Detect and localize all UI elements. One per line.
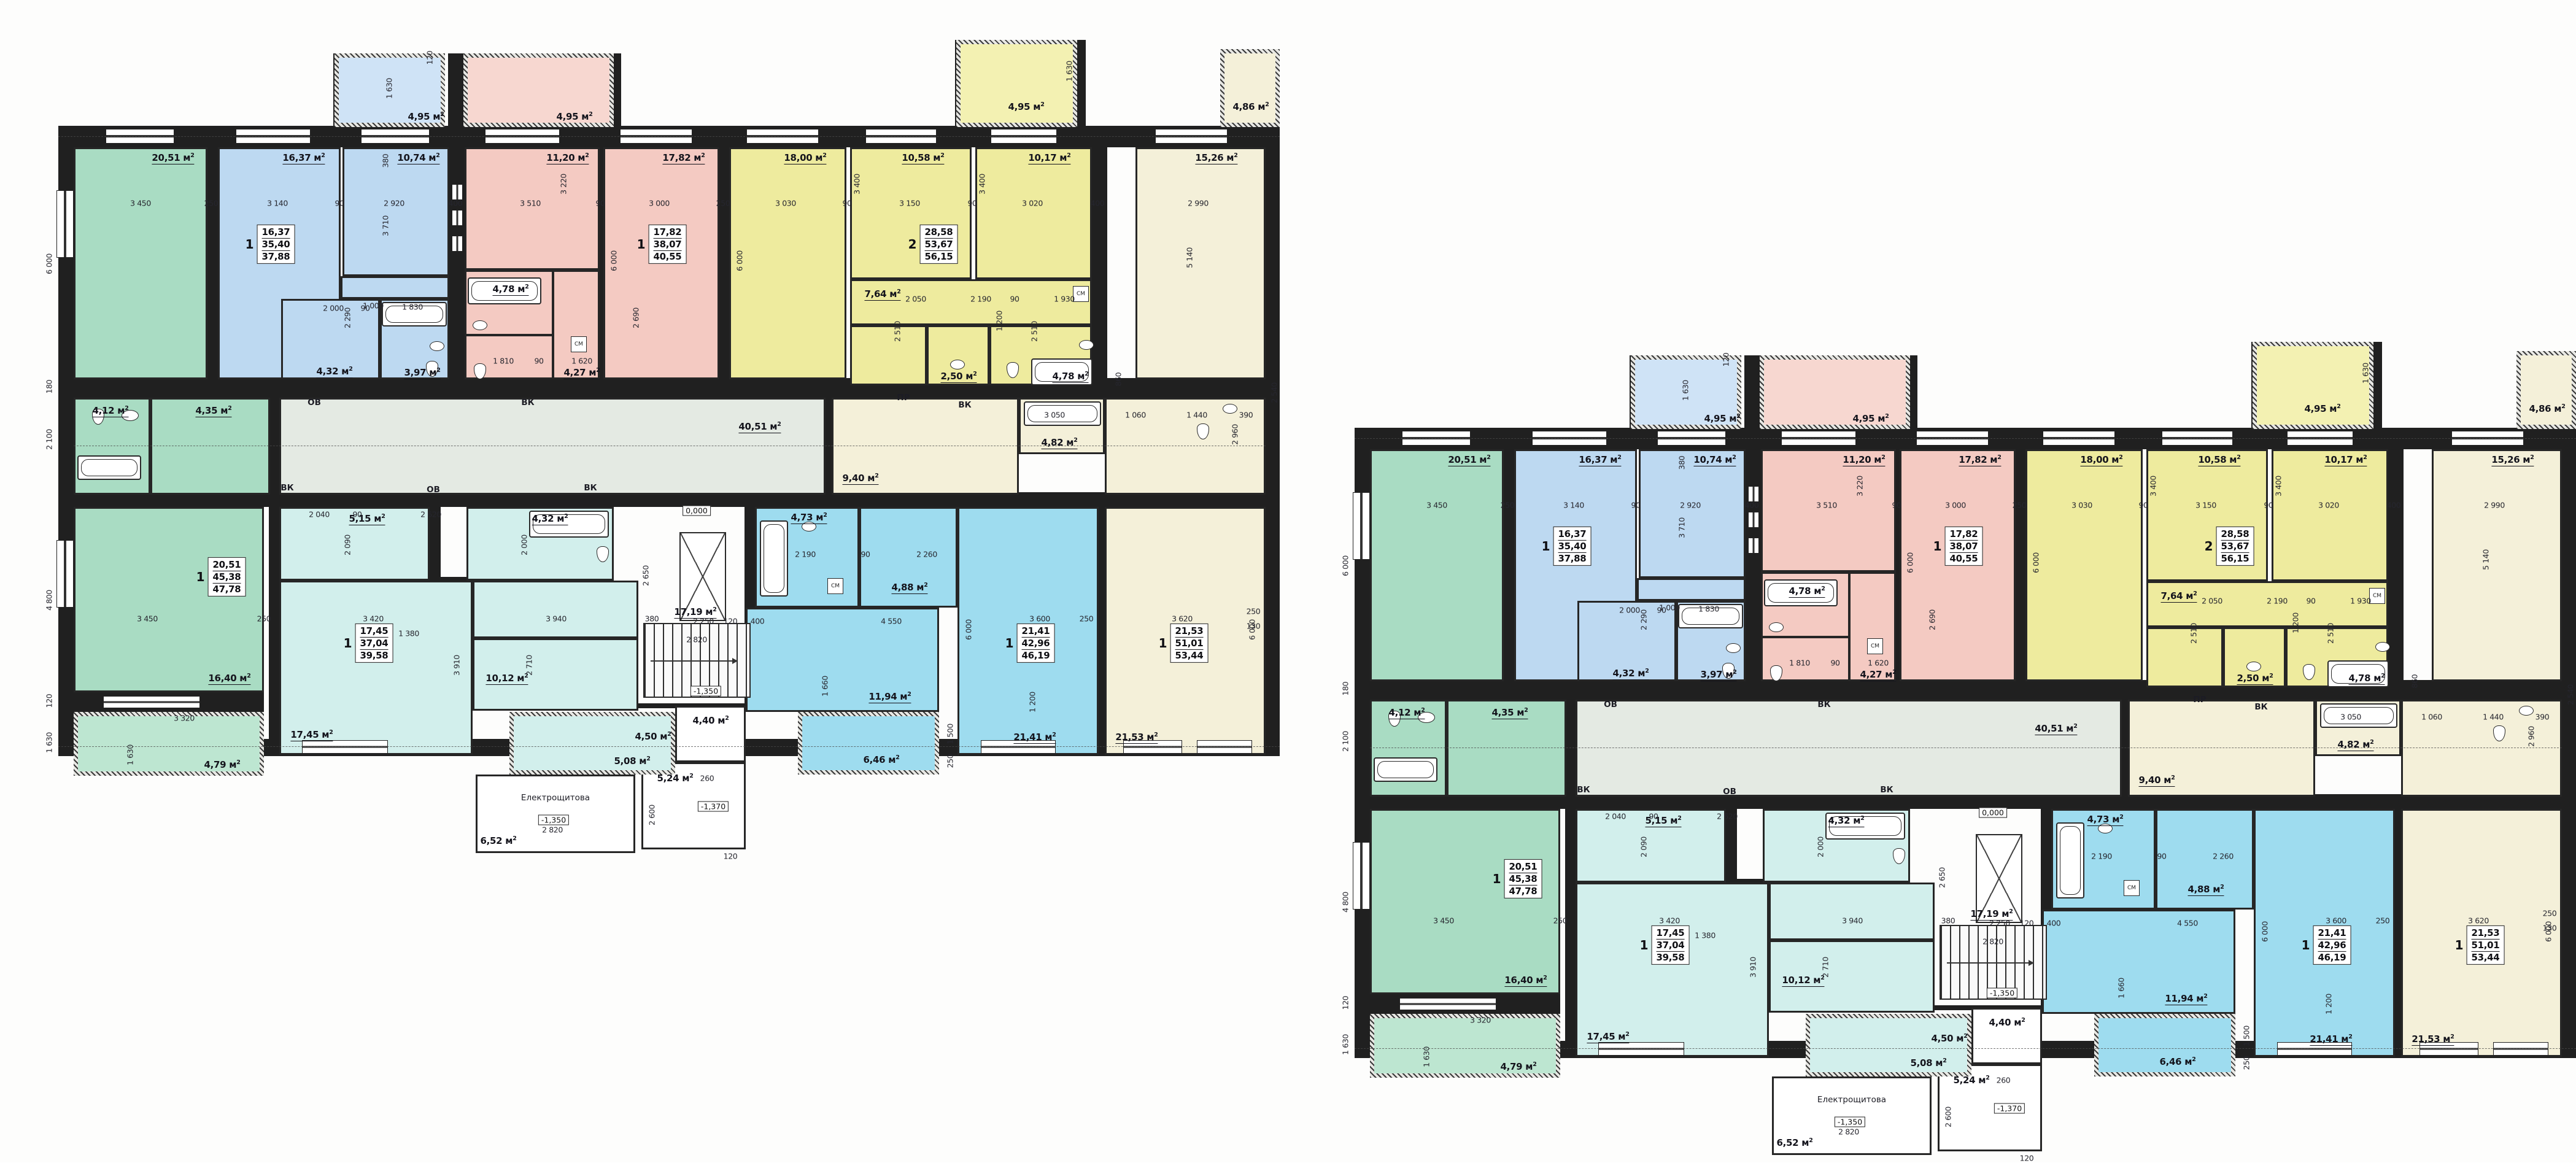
- dimension-label: 2 190: [795, 550, 816, 559]
- apartment-area-value: 16,37: [261, 226, 290, 239]
- room-area-label: 2,50 м2: [940, 371, 977, 383]
- dimension-label: 250: [1080, 614, 1094, 624]
- dimension-label-vertical: 1 660: [2117, 978, 2126, 999]
- vestibule-440: [675, 706, 746, 762]
- dimension-label: 1 440: [1186, 411, 1207, 420]
- dimension-label-vertical: 3 220: [1855, 476, 1865, 496]
- room-area-label: 17,82 м2: [1959, 454, 2001, 466]
- dimension-label: 3 320: [174, 714, 195, 723]
- dimension-label-vertical: 4 800: [1341, 892, 1350, 913]
- room-area-label: 17,82 м2: [662, 152, 705, 164]
- apartment-area-value: 17,82: [653, 226, 681, 239]
- dimension-label-vertical: 2 960: [2527, 726, 2536, 747]
- dimension-label: 2 920: [384, 199, 404, 208]
- room-area-label: 10,58 м2: [2198, 454, 2240, 466]
- dimension-label: 1 830: [1698, 605, 1719, 614]
- dimension-label: 250: [204, 199, 219, 208]
- room-area-label: 7,64 м2: [864, 288, 900, 301]
- room-area-label: 7,64 м2: [2160, 590, 2197, 603]
- room-area-label: 17,45 м2: [1587, 1031, 1629, 1043]
- apartment-room-count: 1: [246, 237, 254, 252]
- apartment-room-count: 1: [1493, 871, 1501, 886]
- dimension-label-vertical: 180: [1341, 682, 1350, 696]
- room-area-label: 4,73 м2: [2087, 814, 2123, 826]
- dimension-label-vertical: 1 200: [995, 311, 1004, 331]
- level-mark: -1,350: [1987, 988, 2017, 999]
- room-area-label: 3,97 м2: [404, 367, 440, 379]
- dimension-label-vertical: 2 100: [45, 429, 54, 450]
- axis-line: [1355, 1048, 2576, 1049]
- apartment-area-value: 53,67: [924, 239, 953, 251]
- dimension-label: 2 990: [1188, 199, 1209, 208]
- dimension-label: 90: [360, 304, 369, 313]
- apartment-area-value: 53,44: [2471, 951, 2499, 963]
- sink-fixture: [950, 360, 965, 369]
- dimension-label: 390: [2535, 713, 2550, 722]
- dimension-label: 2 040: [1605, 812, 1626, 821]
- dimension-label-vertical: 2 690: [1928, 609, 1937, 630]
- tub-fixture: [760, 520, 788, 597]
- dimension-label-vertical: 1 630: [126, 744, 135, 765]
- wall-segment: [269, 398, 279, 755]
- dimension-label: 90: [2264, 501, 2273, 510]
- dimension-label: 2 250: [1989, 919, 2010, 928]
- tub-fixture: [1374, 757, 1437, 782]
- apartment-areas-box: 16,3735,4037,88: [1553, 527, 1591, 566]
- dimension-label: 90: [1657, 606, 1666, 615]
- apartment-area-value: 45,38: [1509, 873, 1537, 886]
- wall-segment: [1909, 355, 1917, 430]
- dimension-label-vertical: 3 400: [853, 174, 862, 195]
- apartment-area-value: 53,44: [1175, 649, 1203, 661]
- apartment-area-value: 47,78: [212, 583, 241, 595]
- room-area-label: 4,35 м2: [1491, 707, 1528, 719]
- dimension-label: 250: [1501, 501, 1515, 510]
- dimension-label: 3 450: [1433, 916, 1454, 925]
- wash-fixture: СМ: [571, 336, 587, 352]
- dimension-label-vertical: 2 090: [1639, 837, 1649, 857]
- service-niche-label: ПР: [897, 393, 910, 403]
- room-area-label: 4,27 м2: [563, 367, 600, 379]
- window: [1748, 538, 1759, 554]
- dimension-label: 2 040: [309, 510, 330, 519]
- wall-segment: [1264, 126, 1280, 756]
- dimension-label: 250: [257, 614, 271, 624]
- apartment-areas-box: 16,3735,4037,88: [257, 225, 295, 264]
- balcony-area-label: 4,86 м2: [2529, 403, 2565, 414]
- apt-info-blue: 116,3735,4037,88: [246, 225, 295, 264]
- dimension-label: 250: [716, 199, 730, 208]
- room-area-label: 4,32 м2: [1612, 668, 1649, 680]
- window: [103, 696, 200, 708]
- dimension-label-vertical: 250: [946, 754, 955, 768]
- room-area-label: 11,20 м2: [1843, 454, 1885, 466]
- dimension-label: 3 050: [2340, 713, 2361, 722]
- dimension-label: 1 830: [402, 303, 423, 312]
- service-niche-label: ВК: [1817, 700, 1830, 709]
- room-area-label: 11,94 м2: [2165, 993, 2207, 1005]
- apartment-area-value: 47,78: [1509, 885, 1537, 897]
- dimension-label-vertical: 1 630: [385, 78, 394, 99]
- room-area-label: 4,12 м2: [92, 405, 128, 417]
- apartment-areas-box: 28,5853,6756,15: [2216, 527, 2254, 566]
- room-area-label: 11,20 м2: [546, 152, 589, 164]
- dimension-label: 3 600: [2326, 916, 2346, 925]
- window: [1748, 512, 1759, 528]
- balcony-area-label: 4,95 м2: [1008, 101, 1044, 112]
- room-area-label: 21,53 м2: [1115, 732, 1158, 744]
- service-niche-label: ВК: [2254, 702, 2267, 712]
- balcony-yellow: [2253, 342, 2373, 429]
- dimension-label: 2 820: [686, 635, 707, 644]
- service-niche-label: ВК: [958, 400, 971, 410]
- wall-segment: [613, 53, 621, 128]
- dimension-label: 1 620: [1868, 659, 1889, 668]
- dimension-label: 2 260: [916, 550, 937, 559]
- room-area-label: 9,40 м2: [842, 473, 878, 485]
- service-niche-label: ВК: [1880, 785, 1893, 795]
- level-mark: 0,000: [683, 506, 711, 516]
- dimension-label-vertical: 2 290: [343, 307, 352, 328]
- tub-fixture: [77, 455, 141, 480]
- apartment-areas-box: 21,5351,0153,44: [1170, 624, 1208, 663]
- balcony-area-label: 4,79 м2: [204, 759, 240, 770]
- dimension-label-vertical: 2 510: [2189, 623, 2199, 644]
- dimension-label-vertical: 380: [1677, 456, 1687, 470]
- window: [1197, 740, 1252, 754]
- dimension-label: 3 140: [1563, 501, 1584, 510]
- room-area-label: 4,82 м2: [1041, 437, 1077, 449]
- tub-fixture: [2056, 822, 2084, 898]
- dimension-label: 3 140: [267, 199, 288, 208]
- apartment-room-count: 2: [908, 237, 917, 252]
- room-name-label: Електрощитова: [521, 793, 590, 803]
- dimension-label-vertical: 120: [45, 694, 54, 708]
- apartment-area-value: 21,53: [1175, 625, 1203, 638]
- hall-blue: [1637, 578, 1746, 601]
- balcony-area-label: 4,95 м2: [1704, 413, 1740, 424]
- apartment-room-count: 2: [2205, 539, 2213, 554]
- dimension-label: 400: [1091, 199, 1105, 208]
- dimension-label-vertical: 120: [1341, 996, 1350, 1010]
- dimension-label: 3 030: [2071, 501, 2092, 510]
- dimension-label: 2 620: [420, 510, 441, 519]
- apartment-room-count: 1: [1005, 636, 1014, 651]
- wash-fixture: СМ: [2369, 588, 2385, 604]
- dimension-label: 400: [751, 617, 765, 626]
- dimension-label: 4 550: [881, 617, 902, 626]
- dimension-label-vertical: 2 090: [343, 535, 352, 555]
- apartment-areas-box: 20,5145,3847,78: [207, 557, 246, 597]
- service-niche-label: ОВ: [427, 485, 440, 495]
- dimension-label-vertical: 860: [2410, 674, 2419, 689]
- room-area-label: 20,51 м2: [152, 152, 194, 164]
- room-area-label: 15,26 м2: [2491, 454, 2534, 466]
- room-area-label: 4,78 м2: [1052, 371, 1088, 383]
- dimension-label-vertical: 1 630: [1341, 1034, 1350, 1055]
- level-mark: -1,350: [690, 686, 721, 697]
- dimension-label: 90: [1892, 501, 1901, 510]
- apartment-area-value: 40,55: [1949, 552, 1978, 564]
- dimension-label-vertical: 2 650: [641, 565, 651, 586]
- dimension-label: 90: [352, 510, 362, 519]
- dimension-label: 120: [724, 617, 738, 626]
- dimension-label-vertical: 1 660: [821, 676, 830, 697]
- apartment-area-value: 37,04: [1656, 940, 1684, 952]
- dimension-label-vertical: 1 630: [1681, 380, 1690, 401]
- window: [452, 236, 463, 252]
- room-area-label: 10,17 м2: [2324, 454, 2367, 466]
- wash-fixture: СМ: [2124, 880, 2140, 896]
- axis-line: [1355, 438, 2576, 439]
- apartment-area-value: 39,58: [1656, 951, 1684, 963]
- room-area-label: 21,53 м2: [2412, 1034, 2454, 1046]
- dimension-label-vertical: 3 710: [381, 215, 390, 236]
- apartment-room-count: 1: [1933, 539, 1942, 554]
- dimension-label: 90: [2157, 852, 2166, 861]
- wall-segment: [206, 147, 218, 379]
- apt-info-cyan2: 121,4142,9646,19: [1005, 624, 1055, 663]
- apartment-area-value: 53,67: [2221, 541, 2249, 553]
- dimension-label: 380: [1941, 916, 1955, 925]
- wall-segment: [1565, 700, 1576, 1057]
- dimension-label: 1 930: [2350, 597, 2371, 606]
- room-area-label: 2,50 м2: [2237, 673, 2273, 685]
- apartment-areas-box: 28,5853,6756,15: [919, 225, 957, 264]
- dimension-label: 2 050: [2202, 597, 2222, 606]
- apartment-area-value: 46,19: [1021, 649, 1050, 661]
- dimension-label-vertical: 6 000: [609, 250, 619, 271]
- room-area-label: 11,94 м2: [868, 691, 911, 703]
- dimension-label: 2 190: [2267, 597, 2288, 606]
- balcony-area-label: 6,46 м2: [863, 754, 899, 765]
- dimension-label-vertical: 4 800: [45, 590, 54, 611]
- dimension-label-vertical: 120: [1722, 353, 1731, 367]
- dimension-label: 1 930: [1054, 295, 1075, 304]
- dimension-label-vertical: 1 500: [2242, 1026, 2251, 1046]
- dimension-label: 3 510: [1816, 501, 1837, 510]
- dimension-label-vertical: 6 000: [735, 250, 745, 271]
- dimension-label-vertical: 3 710: [1677, 517, 1687, 538]
- apartment-room-count: 1: [1159, 636, 1167, 651]
- balcony-area-label: 4,95 м2: [408, 111, 444, 122]
- dimension-label: 4 550: [2177, 919, 2198, 928]
- room-kitchen-blue: [1639, 449, 1746, 578]
- apartment-area-value: 56,15: [924, 250, 953, 262]
- apartment-areas-box: 21,5351,0153,44: [2466, 925, 2504, 965]
- room-area-label: 21,41 м2: [2310, 1034, 2352, 1046]
- dimension-label: 90: [1631, 501, 1640, 510]
- apt-info-pink: 117,8238,0740,55: [637, 225, 687, 264]
- apt-info-blue: 116,3735,4037,88: [1542, 527, 1592, 566]
- apartment-area-value: 51,01: [1175, 638, 1203, 650]
- dimension-label-vertical: 6 000: [1341, 555, 1350, 576]
- dimension-label: 1 380: [1695, 931, 1715, 940]
- room-area-label: 21,41 м2: [1013, 732, 1056, 744]
- dimension-label-vertical: 2 710: [525, 655, 534, 676]
- window: [1399, 998, 1496, 1010]
- apt-info-cyan1: 117,4537,0439,58: [344, 624, 393, 663]
- dimension-label-vertical: 3 910: [452, 655, 462, 676]
- service-niche-label: ПР: [2193, 695, 2206, 705]
- dimension-label: 1 440: [2483, 713, 2504, 722]
- dimension-label-vertical: 1 200: [1028, 692, 1037, 713]
- window: [56, 540, 74, 608]
- apartment-area-value: 40,55: [653, 250, 681, 262]
- balcony-area-label: 4,95 м2: [2304, 403, 2340, 414]
- niche-yellow: [2146, 627, 2223, 687]
- wash-fixture: СМ: [827, 578, 843, 594]
- dimension-label-vertical: 2 290: [1639, 609, 1649, 630]
- dimension-label-vertical: 2 600: [1944, 1107, 1953, 1127]
- sink-fixture: [2375, 642, 2390, 652]
- dimension-label: 3 450: [130, 199, 151, 208]
- room-living-green: [1370, 449, 1504, 681]
- axis-line: [58, 136, 1280, 137]
- apartment-area-value: 17,82: [1949, 528, 1978, 541]
- dimension-label-vertical: 5 140: [1185, 247, 1194, 268]
- room-area-label: 10,12 м2: [1782, 975, 1824, 987]
- balcony-area-label: 4,50 м2: [635, 731, 671, 742]
- apartment-area-value: 51,01: [2471, 940, 2499, 952]
- dimension-label-vertical: 3 400: [2149, 476, 2158, 496]
- dimension-label: 1 620: [571, 357, 592, 366]
- dimension-label-vertical: 2 960: [1231, 424, 1240, 445]
- room-area-label: 4,32 м2: [1828, 815, 1864, 827]
- dimension-label-vertical: 1 500: [946, 724, 955, 744]
- dimension-label: 2 990: [2484, 501, 2505, 510]
- dimension-label-vertical: 6 000: [45, 253, 54, 274]
- dimension-label: 120: [2020, 1154, 2034, 1163]
- wall-segment: [1503, 449, 1514, 681]
- dimension-label: 3 450: [1426, 501, 1447, 510]
- sink-fixture: [430, 341, 444, 351]
- level-mark: -1,370: [698, 802, 729, 812]
- room-pink: [1761, 449, 1896, 572]
- sink-fixture: [2519, 706, 2534, 716]
- service-niche-label: ОВ: [307, 398, 321, 408]
- dimension-label-vertical: 2 510: [893, 321, 902, 342]
- dimension-label: 2 260: [2213, 852, 2234, 861]
- window: [1353, 842, 1370, 910]
- room-area-label: 17,45 м2: [290, 729, 333, 741]
- dimension-label-vertical: 860: [1114, 373, 1123, 387]
- apartment-area-value: 38,07: [1949, 541, 1978, 553]
- apartment-area-value: 56,15: [2221, 552, 2249, 564]
- apartment-area-value: 20,51: [1509, 861, 1537, 873]
- dimension-label-vertical: 1 630: [2361, 363, 2370, 384]
- dimension-label: 380: [645, 614, 659, 624]
- dimension-label-vertical: 380: [381, 154, 390, 168]
- dimension-label-vertical: 1 200: [2324, 994, 2334, 1014]
- room-area-label: 40,51 м2: [738, 421, 781, 433]
- room-living-yellow: [2025, 449, 2143, 681]
- dimension-label: 90: [1649, 812, 1658, 821]
- room-area-label: 4,27 м2: [1860, 669, 1896, 681]
- apartment-area-value: 42,96: [1021, 638, 1050, 650]
- service-niche-label: ОВ: [1723, 787, 1736, 797]
- room-area-label: 4,32 м2: [316, 366, 352, 378]
- apartment-area-value: 38,07: [653, 239, 681, 251]
- apartment-area-value: 21,41: [2318, 927, 2346, 940]
- dimension-label: 90: [1010, 295, 1019, 304]
- kitchen-green: [74, 507, 264, 692]
- dimension-label: 400: [2047, 919, 2061, 928]
- axis-line: [74, 446, 1266, 446]
- dimension-label-vertical: 2 710: [1821, 957, 1830, 978]
- balcony-area-label: 6,52 м2: [1776, 1137, 1812, 1148]
- room-area-label: 16,40 м2: [208, 673, 250, 685]
- wall-segment: [2372, 342, 2382, 429]
- dimension-label-vertical: 3 220: [559, 174, 568, 195]
- apartment-room-count: 1: [637, 237, 646, 252]
- balcony-area-label: 4,50 м2: [1931, 1033, 1967, 1044]
- apt-info-beige: 121,5351,0153,44: [2455, 925, 2505, 965]
- dimension-label: 90: [861, 550, 870, 559]
- balcony-area-label: 5,08 м2: [614, 755, 650, 767]
- dimension-label: 120: [2020, 919, 2034, 928]
- balcony-area-label: 4,95 м2: [1852, 413, 1889, 424]
- room-area-label: 16,40 м2: [1504, 975, 1547, 987]
- wall-segment: [2561, 428, 2576, 1058]
- dimension-label: 260: [1997, 1076, 2011, 1085]
- dimension-label: 3 150: [2195, 501, 2216, 510]
- apartment-room-count: 1: [196, 570, 205, 584]
- room-area-label: 4,35 м2: [195, 405, 231, 417]
- balcony-area-label: 4,86 м2: [1232, 101, 1269, 112]
- dimension-label: 2 190: [970, 295, 991, 304]
- vestibule-440: [1971, 1008, 2042, 1064]
- room-area-label: 4,88 м2: [2187, 884, 2224, 896]
- dimension-label: 90: [967, 199, 977, 208]
- room-ext-cyan1: [1769, 883, 1935, 940]
- apartment-area-value: 21,53: [2471, 927, 2499, 940]
- niche-yellow: [850, 325, 927, 385]
- level-mark: -1,350: [538, 815, 569, 825]
- wall-segment: [718, 147, 729, 379]
- apartment-area-value: 42,96: [2318, 940, 2346, 952]
- dimension-label-vertical: 1 630: [45, 732, 54, 753]
- dimension-label: 3 600: [1029, 614, 1050, 624]
- dimension-label-vertical: 6 000: [2032, 552, 2041, 573]
- dimension-label: 1 810: [493, 357, 514, 366]
- dimension-label: 3 030: [775, 199, 796, 208]
- dimension-label: 3 510: [520, 199, 541, 208]
- apt-info-cyan1: 117,4537,0439,58: [1640, 925, 1690, 965]
- apartment-areas-box: 21,4142,9646,19: [1016, 624, 1054, 663]
- dimension-label: 2 000: [323, 304, 344, 313]
- balcony-cream: [2516, 351, 2576, 429]
- room-area-label: 4,78 м2: [492, 284, 528, 296]
- dimension-label-vertical: 2 690: [632, 307, 641, 328]
- balcony-yellow: [956, 40, 1077, 127]
- room-area-label: 16,37 м2: [282, 152, 325, 164]
- window: [452, 210, 463, 226]
- wall-segment: [1076, 40, 1086, 127]
- dimension-label-vertical: 2 600: [648, 805, 657, 825]
- dimension-label: 90: [842, 199, 851, 208]
- room-living-yellow: [729, 147, 846, 379]
- balcony-area-label: 6,52 м2: [480, 835, 516, 846]
- sink-fixture: [1769, 622, 1784, 632]
- room-area-label: 10,17 м2: [1028, 152, 1070, 164]
- sink-fixture: [2246, 662, 2261, 671]
- dimension-label: 3 000: [649, 199, 670, 208]
- room-area-label: 4,78 м2: [2348, 673, 2385, 685]
- dimension-label: 90: [335, 199, 344, 208]
- service-niche-label: ВК: [521, 398, 534, 408]
- room-area-label: 4,73 м2: [791, 512, 827, 524]
